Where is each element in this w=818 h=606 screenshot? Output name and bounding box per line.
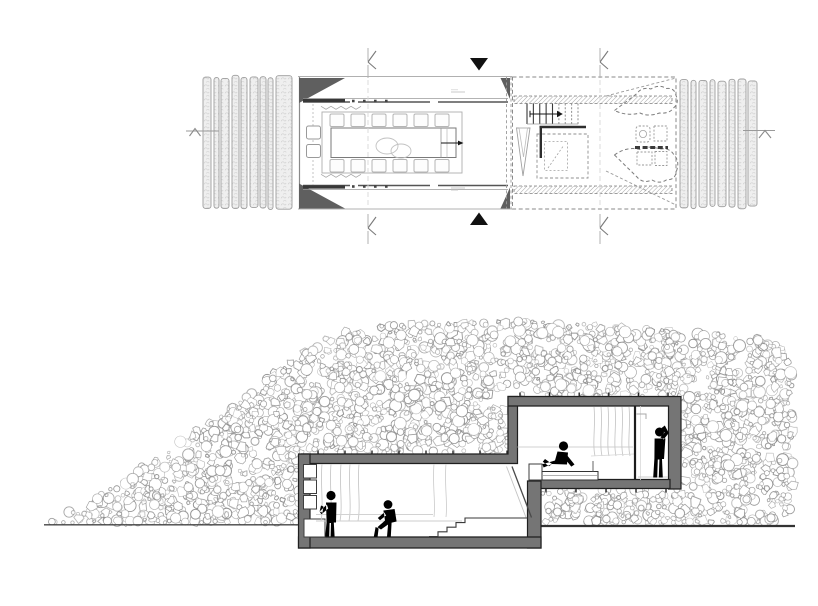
section-tick [600,51,608,62]
plan-stone-hatch-left [203,75,292,209]
pebble [417,364,425,372]
pebble [611,494,615,498]
pebble [725,369,733,376]
pebble [311,427,317,433]
pebble [388,331,392,334]
pebble [377,390,382,394]
pebble [606,327,615,336]
pebble [734,340,746,352]
pebble [467,367,472,372]
curtain-hem [591,454,634,456]
pebble [786,402,790,406]
pebble [526,376,532,382]
pebble [613,347,622,356]
pebble [285,432,292,439]
pebble [74,515,84,524]
pebble [580,355,587,362]
pebble [435,401,446,412]
pebble [747,346,753,352]
pebble [607,377,613,383]
pebble [777,458,782,463]
pebble [514,383,520,389]
side-marker-caret [190,129,201,137]
person-leaning-on-steps [374,500,397,537]
pebble [745,481,748,485]
pebble [194,458,198,462]
pebble [313,441,319,447]
chair [393,114,407,127]
pebble [737,520,742,525]
pebble [243,427,249,433]
pebble [700,338,711,349]
pebble [131,486,134,489]
pebble [716,492,721,497]
pebble [753,437,756,440]
pebble [576,323,579,327]
pebble [274,385,281,392]
pebble [421,345,427,351]
stone-wall-strip [738,79,746,209]
pebble [619,326,631,338]
pebble [319,396,329,406]
pebble [134,492,142,500]
stone-wall-strip [214,77,219,208]
pebble [210,477,216,483]
pebble [611,359,616,364]
pebble [397,429,404,436]
stone-wall-strip [691,80,696,208]
pebble [726,521,730,525]
pebble [372,336,378,342]
pebble [473,402,477,406]
pebble [348,427,352,431]
pebble [340,343,346,349]
pebble [740,383,748,391]
wall-shelf [304,465,317,479]
pebble [613,518,619,524]
pebble [234,426,240,432]
pebble [541,321,544,324]
pebble [691,415,701,425]
pebble [747,435,751,439]
pebble [336,349,346,359]
pebble [765,443,771,449]
pebble [303,408,307,412]
pebble [615,362,622,369]
window-mullion [385,185,388,188]
chair [393,160,407,173]
pebble [398,383,402,388]
pebble [701,356,707,362]
pebble [711,395,716,400]
pebble [593,338,597,342]
pebble [483,392,490,399]
stone-wall-strip [250,77,258,208]
pebble [708,461,713,466]
pebble [348,437,358,447]
fixture-dashed [654,126,667,141]
chair [435,114,449,127]
pebble [232,450,236,454]
pebble [201,441,211,451]
chair [372,114,386,127]
pebble [320,363,326,368]
pebble [462,449,466,453]
pebble [483,322,488,327]
pebble [547,491,552,496]
stone-wall-strip [260,77,266,208]
pebble [445,338,455,346]
pebble [782,443,789,450]
window-mullion [352,185,355,188]
section-tick [368,217,376,228]
pebble [504,368,509,373]
section-view [44,317,798,548]
pebble [113,502,122,511]
pebble [785,367,797,379]
pebble [355,382,360,388]
pebble [286,369,291,374]
pebble [200,521,204,525]
chair [414,114,428,127]
pebble [497,320,501,324]
pebble [770,414,774,418]
pebble [759,399,763,403]
pebble [418,337,421,341]
pebble [390,355,398,363]
pebble [720,334,726,339]
pebble [768,431,777,441]
pebble [710,381,717,388]
pebble [687,375,690,378]
pebble [751,411,754,414]
pebble [770,492,778,500]
pebble [701,352,705,356]
pebble [184,483,193,492]
pebble [196,451,201,458]
pebble [715,356,722,363]
pebble [565,356,568,359]
pebble [682,363,685,366]
bed-inner-dashed [545,142,568,171]
pebble [225,480,229,484]
pebble [672,376,678,382]
pebble [775,369,786,380]
pebble [433,423,441,431]
pebble [415,359,419,363]
plan-main-room [298,77,512,210]
pebble [587,325,592,330]
pebble [407,443,410,446]
pebble [484,388,488,392]
pebble [657,504,662,509]
pebble [49,518,56,525]
pebble [115,496,121,502]
pebble [473,373,479,380]
pebble [490,331,498,339]
pebble [770,377,776,383]
pebble [745,452,751,458]
pebble [204,437,208,441]
pebble [548,357,556,365]
pebble [787,458,798,469]
pebble [567,384,576,393]
pebble [493,343,497,347]
pebble [446,418,451,423]
pebble [595,364,598,367]
pebble [634,511,639,516]
pebble [172,480,176,483]
pebble [121,510,129,518]
section-tick [368,51,376,62]
chair [435,160,449,173]
pebble [525,335,533,343]
pebble [639,382,645,388]
pebble [376,407,381,413]
pebble [250,502,254,506]
pebble [424,371,430,377]
pebble [451,368,461,378]
pebble [775,358,782,365]
pebble [784,422,789,427]
pebble [687,424,691,428]
pebble [746,367,753,374]
pebble [394,417,406,429]
pebble [656,357,662,363]
pebble [728,472,732,476]
pebble [405,383,408,386]
pebble [787,381,791,385]
pebble [508,358,514,364]
pebble [580,364,588,372]
pebble [213,519,217,523]
plan-stone-hatch-right [680,79,757,209]
pebble [486,344,490,348]
pebble [317,359,321,364]
pebble [430,321,435,326]
pebble [301,364,312,375]
pebble [706,492,712,498]
pebble [754,386,766,398]
pebble [231,482,240,491]
chair [414,160,428,173]
pebble [86,512,92,520]
pebble [196,499,202,505]
chair [351,160,365,173]
pebble [739,391,747,399]
pebble [367,354,373,360]
pebble [383,337,394,348]
pebble [515,372,525,382]
pebble [295,420,301,426]
pebble [437,415,441,420]
pebble [728,354,734,360]
pebble [209,454,216,461]
section-tick [600,62,608,69]
pebble [694,335,698,339]
pebble [321,355,325,359]
pebble [280,497,285,502]
pebble [754,336,763,345]
pebble [71,511,75,515]
pebble [645,328,654,337]
pebble [167,451,170,454]
pebble [356,367,362,373]
architectural-drawing-sheet [0,0,818,606]
pebble [284,389,289,394]
stone-wall-strip [221,78,229,208]
person-showering [653,426,669,478]
pebble [555,379,567,391]
curtain-line [601,407,602,456]
pebble [662,505,666,509]
pebble [730,401,735,407]
stone-wall-strip [710,80,715,207]
pebble [377,400,383,406]
chair [330,160,344,173]
pebble [407,346,411,350]
pebble [710,371,715,375]
pebble [767,514,775,522]
pebble [140,512,145,518]
pebble [467,372,470,375]
pebble [567,346,573,352]
pebble [583,385,595,397]
floor-plan-view [186,48,775,244]
pebble [638,505,644,511]
pebble [330,397,334,401]
pebble [557,489,563,495]
pebble [671,521,675,525]
pebble [446,322,451,327]
section-flag-down [470,58,488,71]
pebble [148,498,151,501]
pebble [409,389,421,401]
pebble [501,360,506,365]
curtain-line [629,407,630,456]
pebble [281,369,287,375]
curtain-line [594,407,595,456]
pebble [557,344,565,352]
pebble [721,518,726,523]
pebble [719,469,725,475]
pebble [671,333,680,342]
pebble [553,518,557,522]
zigzag-symbol [321,106,361,109]
fixture-dashed [637,152,652,165]
pebble [251,477,256,482]
pebble [474,346,484,356]
pebble [537,378,540,381]
pebble [768,501,775,508]
pebble [501,352,505,356]
stool [307,126,321,139]
pebble [422,426,432,436]
pebble [150,500,160,510]
pebble [651,338,656,343]
pebble [721,389,725,394]
pebble [92,520,95,523]
pebble [183,449,194,460]
pebble [289,496,295,502]
pebble [771,469,775,473]
pebble [148,464,155,471]
pebble [629,348,633,352]
pebble [682,463,687,468]
pebble [582,322,586,326]
pebble [535,360,539,364]
pebble [554,508,562,516]
pebble [283,479,292,488]
pebble [398,371,406,382]
pebble [265,478,273,486]
pebble [302,389,312,399]
pebble [109,488,112,491]
pebble [523,356,527,360]
chair [351,114,365,127]
pebble [622,520,626,524]
pebble [498,426,501,430]
pebble [291,378,294,381]
pebble [704,477,710,483]
pebble [147,512,155,519]
pebble [372,369,375,372]
pebble [716,332,720,336]
pebble [165,490,169,494]
pebble [458,356,461,359]
stone-mound [49,317,799,527]
pebble [475,360,479,364]
wall-shelf [304,496,317,510]
pebble [93,494,103,504]
pebble [723,460,734,471]
window-mullion [374,185,377,188]
pebble [160,462,170,472]
pebble [215,466,225,476]
pebble [686,518,693,525]
curtain-line [358,464,359,521]
fixture-bowl [639,130,646,137]
pebble [267,389,274,396]
ground-lines [44,525,795,526]
pebble [336,436,347,447]
pebble [601,372,607,377]
pebble [396,330,406,340]
pebble [241,454,244,457]
pebble [171,513,181,523]
pebble [540,382,550,392]
pebble [273,508,279,515]
pebble [684,414,688,418]
pebble [471,417,475,421]
pebble [626,514,631,519]
pebble [249,418,253,422]
pebble [572,496,579,503]
stone-wall-strip [680,80,688,208]
window-mullion [352,100,355,103]
pebble [675,509,685,519]
pebble [346,334,353,341]
figure-head [384,500,393,509]
pebble [381,426,386,432]
pebble [528,345,533,350]
pebble [578,330,584,336]
pebble [483,376,493,386]
curtain-line [340,464,341,521]
pebble [288,466,294,472]
stone-wall-strip [203,77,211,208]
pebble [317,422,323,427]
